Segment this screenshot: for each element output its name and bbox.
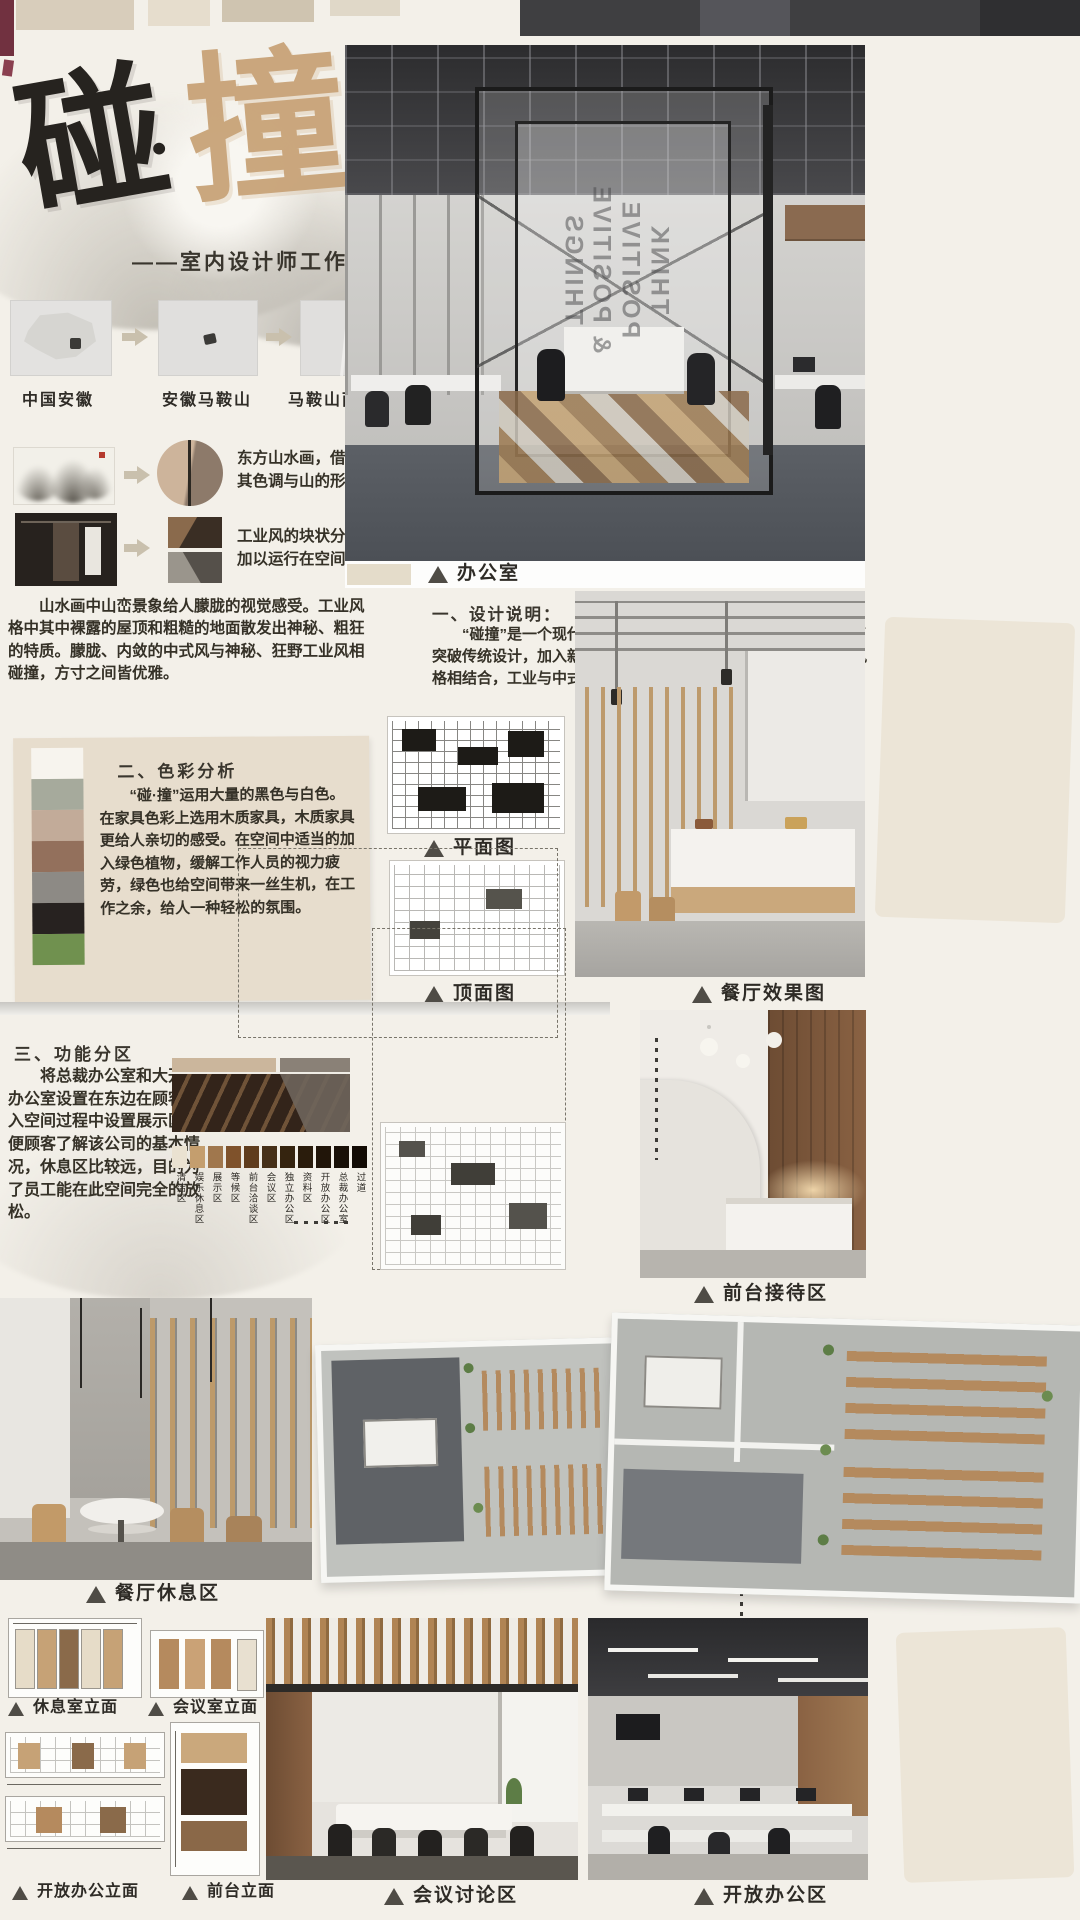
legend-label: 开放办公区 [319, 1172, 329, 1225]
dimension-line [175, 1731, 176, 1867]
zoning-legend: 清洁区 娱乐休息区 展示区 等候区 前台洽谈区 会议区 独立办公区 资料区 [172, 1146, 367, 1225]
triangle-marker-icon [8, 1702, 24, 1716]
painting-mountain [77, 467, 113, 499]
map-landmass [20, 310, 100, 362]
floor-area [640, 1250, 866, 1278]
map-highlight [70, 338, 81, 349]
legend-label: 前台洽谈区 [247, 1172, 257, 1225]
presentation-board: 碰 · 撞 ——室内设计师工作室 中国安徽 安徽马鞍山 马鞍山雨山 东方山水画，… [0, 0, 1080, 1920]
legend-swatch [190, 1146, 205, 1168]
elevation-panel [211, 1639, 231, 1689]
light-slit [85, 527, 101, 575]
pipe-drop [615, 601, 618, 691]
legend-item: 总裁办公室 [334, 1146, 349, 1225]
map-anhui-maanshan [158, 300, 258, 376]
wood-column [266, 1692, 312, 1880]
glass-slogan-text: THINK POSITIVE & POSITIVE THINGS [559, 183, 674, 353]
lounge-elevation-drawing [8, 1618, 142, 1698]
pipe-drop [725, 601, 728, 671]
dimension-line [7, 1784, 161, 1785]
poster-title-dot: · [148, 118, 170, 182]
legend-item: 展示区 [208, 1146, 223, 1225]
white-wall [0, 1298, 70, 1518]
window-wall [745, 651, 865, 801]
elevation-panel [59, 1629, 79, 1689]
office-chair [687, 353, 715, 405]
counter-items [695, 819, 713, 829]
legend-item: 等候区 [226, 1146, 241, 1225]
dimension-line [7, 1848, 161, 1849]
back-wall [588, 1696, 798, 1786]
caption-open-office-elevation: 开放办公立面 [12, 1884, 139, 1900]
landscape-painting-image [13, 447, 115, 505]
legend-swatch [172, 1146, 187, 1168]
elevation-panel [36, 1807, 62, 1833]
block-detail-image [168, 517, 222, 548]
open-office-elevation-drawing [5, 1726, 163, 1872]
decor-paper-shape [896, 1627, 1075, 1883]
wood-cabinet [785, 205, 865, 239]
legend-swatch [208, 1146, 223, 1168]
open-office-image [588, 1618, 868, 1880]
wood-wall [798, 1696, 868, 1816]
pendant-lamp-globe [766, 1032, 782, 1048]
color-analysis-heading: 二、色彩分析 [117, 757, 237, 783]
design-note-heading: 一、设计说明： [432, 601, 562, 625]
triangle-marker-icon [694, 1888, 714, 1905]
material-strip [280, 1058, 350, 1072]
legend-item: 独立办公区 [280, 1146, 295, 1225]
material-strip [172, 1058, 276, 1072]
decor-shape [16, 0, 134, 30]
floor-area [588, 1854, 868, 1880]
legend-label: 娱乐休息区 [193, 1172, 203, 1225]
legend-item: 清洁区 [172, 1146, 187, 1225]
triangle-marker-icon [182, 1886, 198, 1900]
office-chair [537, 349, 565, 401]
white-wall [312, 1692, 498, 1802]
color-swatch [32, 872, 84, 903]
ceiling-beam [266, 1684, 578, 1692]
desk-cluster [482, 1368, 604, 1431]
front-desk-elevation-drawing [170, 1722, 260, 1876]
decor-shape [700, 0, 790, 36]
window-mullions [345, 195, 485, 395]
caption-reception: 前台接待区 [694, 1284, 828, 1303]
plant-pot [506, 1778, 522, 1804]
legend-swatch [316, 1146, 331, 1168]
color-swatch [32, 841, 84, 872]
glass-cube: THINK POSITIVE & POSITIVE THINGS [475, 87, 773, 495]
legend-label: 清洁区 [175, 1172, 185, 1204]
plan-block [492, 783, 544, 813]
counter-items [785, 817, 807, 829]
poster-subtitle: ——室内设计师工作室 [132, 246, 372, 276]
legend-swatch [334, 1146, 349, 1168]
material-collage-image [172, 1058, 350, 1132]
legend-item: 开放办公区 [316, 1146, 331, 1225]
elevation-panel [15, 1629, 35, 1689]
color-swatch [32, 810, 84, 841]
triangle-marker-icon [428, 566, 448, 583]
decor-shape [222, 0, 314, 22]
wood-joint-line [188, 440, 191, 506]
legend-swatch [244, 1146, 259, 1168]
lamp-cables [80, 1298, 82, 1388]
meeting-area-image [266, 1618, 578, 1880]
office-chair [365, 391, 389, 427]
legend-label: 会议区 [265, 1172, 275, 1204]
plan-block [451, 1163, 495, 1185]
plan-block [458, 747, 498, 765]
decor-shape [0, 0, 14, 56]
tv-screen [616, 1714, 660, 1740]
dotted-connector [294, 1221, 348, 1224]
plan-wing-right [604, 1312, 1080, 1603]
color-swatch [32, 903, 84, 934]
floor-area [575, 921, 865, 977]
plan-block [509, 1203, 547, 1229]
elevation-panel [72, 1743, 94, 1769]
elevation-panel [159, 1639, 179, 1689]
legend-label: 总裁办公室 [337, 1172, 347, 1225]
elevation-panel [181, 1733, 247, 1763]
legend-item: 娱乐休息区 [190, 1146, 205, 1225]
triangle-marker-icon [694, 1286, 714, 1303]
elevation-panel [37, 1629, 57, 1689]
meeting-elevation-drawing [150, 1630, 264, 1698]
office-render-image: THINK POSITIVE & POSITIVE THINGS [345, 45, 865, 561]
elevation-panel [181, 1769, 247, 1815]
plant-dot [823, 1344, 834, 1355]
plan-block [508, 731, 544, 757]
legend-item: 前台洽谈区 [244, 1146, 259, 1225]
desk-row [602, 1804, 852, 1816]
map-label: 中国安徽 [22, 386, 94, 410]
decor-shape [330, 0, 400, 16]
pendant-lamp-globe [736, 1054, 750, 1068]
elevation-panel [18, 1743, 40, 1769]
monitor-icon [793, 357, 815, 372]
caption-office: 办公室 [428, 564, 520, 583]
elevation-panel [81, 1629, 101, 1689]
plan-block [402, 729, 436, 751]
plan-wing-left [315, 1337, 633, 1583]
elevation-panel [237, 1639, 257, 1691]
ceiling-pipes [575, 601, 865, 651]
triangle-marker-icon [86, 1586, 106, 1603]
column [763, 105, 773, 455]
wood-slat-ceiling [266, 1618, 578, 1688]
triangle-marker-icon [148, 1702, 164, 1716]
zoning-heading: 三、功能分区 [14, 1040, 134, 1065]
decor-paper-shape [875, 617, 1075, 923]
caption-dining-lounge: 餐厅休息区 [86, 1584, 220, 1603]
office-chair [405, 385, 431, 425]
industrial-interior-image [15, 513, 117, 586]
dotted-connector [655, 1038, 658, 1160]
poster-title-char-2: 撞 [179, 39, 352, 212]
legend-label: 过道 [355, 1172, 365, 1193]
door-panel [53, 521, 79, 581]
meeting-table [363, 1418, 438, 1468]
caption-meeting-elevation: 会议室立面 [148, 1700, 258, 1716]
painting-seal [99, 452, 105, 458]
legend-item: 会议区 [262, 1146, 277, 1225]
conference-table [643, 1355, 722, 1409]
map-china-anhui [10, 300, 112, 376]
office-chair [815, 385, 841, 429]
floor-area [266, 1856, 578, 1880]
legend-label: 展示区 [211, 1172, 221, 1204]
zoning-plan-image [380, 1122, 566, 1270]
elevation-panel [181, 1821, 247, 1851]
caption-meeting-area: 会议讨论区 [384, 1886, 518, 1905]
map-label: 安徽马鞍山 [162, 386, 252, 410]
legend-label: 等候区 [229, 1172, 239, 1204]
desk-cluster [845, 1349, 1047, 1445]
legend-swatch [262, 1146, 277, 1168]
legend-item: 资料区 [298, 1146, 313, 1225]
conference-table [336, 1804, 512, 1830]
reception-render-image [640, 1010, 866, 1278]
elevation-linework [10, 1801, 160, 1837]
elevation-strip [5, 1796, 165, 1842]
counter-bar [671, 829, 855, 913]
triangle-marker-icon [12, 1886, 28, 1900]
map-highlight [203, 333, 217, 345]
legend-swatch [226, 1146, 241, 1168]
legend-swatch [298, 1146, 313, 1168]
dimension-line [13, 1623, 137, 1624]
overview-plan-image [312, 1305, 1080, 1603]
pendant-lamp [721, 669, 732, 685]
elevation-panel [124, 1743, 146, 1769]
caption-dining-render: 餐厅效果图 [692, 984, 826, 1003]
floor-plan-image [387, 716, 565, 834]
pendant-lamp-globe [700, 1038, 718, 1056]
desk-cluster [484, 1464, 606, 1537]
plan-block [418, 787, 466, 811]
office-caption-bar [345, 561, 865, 588]
legend-label: 独立办公区 [283, 1172, 293, 1225]
desk-cluster [841, 1465, 1043, 1561]
color-swatch-column [31, 748, 85, 965]
plan-block [411, 1215, 441, 1235]
wood-detail-image [157, 440, 223, 506]
caption-lounge-elevation: 休息室立面 [8, 1700, 118, 1716]
color-swatch [31, 779, 83, 810]
caption-open-office: 开放办公区 [694, 1886, 828, 1905]
rail-line [21, 521, 111, 523]
plan-block [399, 1141, 425, 1157]
elevation-panel [103, 1629, 123, 1689]
legend-item: 过道 [352, 1146, 367, 1225]
dining-lounge-image [0, 1298, 312, 1580]
inner-wall [614, 1439, 834, 1451]
color-swatch [31, 748, 83, 779]
elevation-panel [100, 1807, 126, 1833]
caption-front-desk-elevation: 前台立面 [182, 1884, 275, 1900]
decor-shape [148, 0, 210, 26]
elevation-strip [5, 1732, 165, 1778]
elevation-panel [185, 1639, 205, 1689]
legend-label: 资料区 [301, 1172, 311, 1204]
decor-shape [347, 564, 411, 585]
inspiration-summary: 山水画中山峦景象给人朦胧的视觉感受。工业风格中其中裸露的屋顶和粗糙的地面散发出神… [8, 596, 372, 714]
plant-dot [463, 1363, 473, 1373]
floor-area [0, 1542, 312, 1580]
wood-slat-screen [150, 1318, 312, 1528]
dark-floor-zone [621, 1469, 803, 1564]
block-detail-image [168, 552, 222, 583]
monitor-icon [628, 1788, 648, 1801]
dark-ceiling [588, 1618, 868, 1696]
triangle-marker-icon [692, 986, 712, 1003]
legend-swatch [280, 1146, 295, 1168]
legend-swatch [352, 1146, 367, 1168]
color-swatch [32, 934, 84, 965]
decor-shape [980, 0, 1080, 36]
triangle-marker-icon [384, 1888, 404, 1905]
reception-desk [726, 1198, 852, 1256]
linear-light [608, 1648, 698, 1652]
dining-render-image [575, 591, 865, 977]
